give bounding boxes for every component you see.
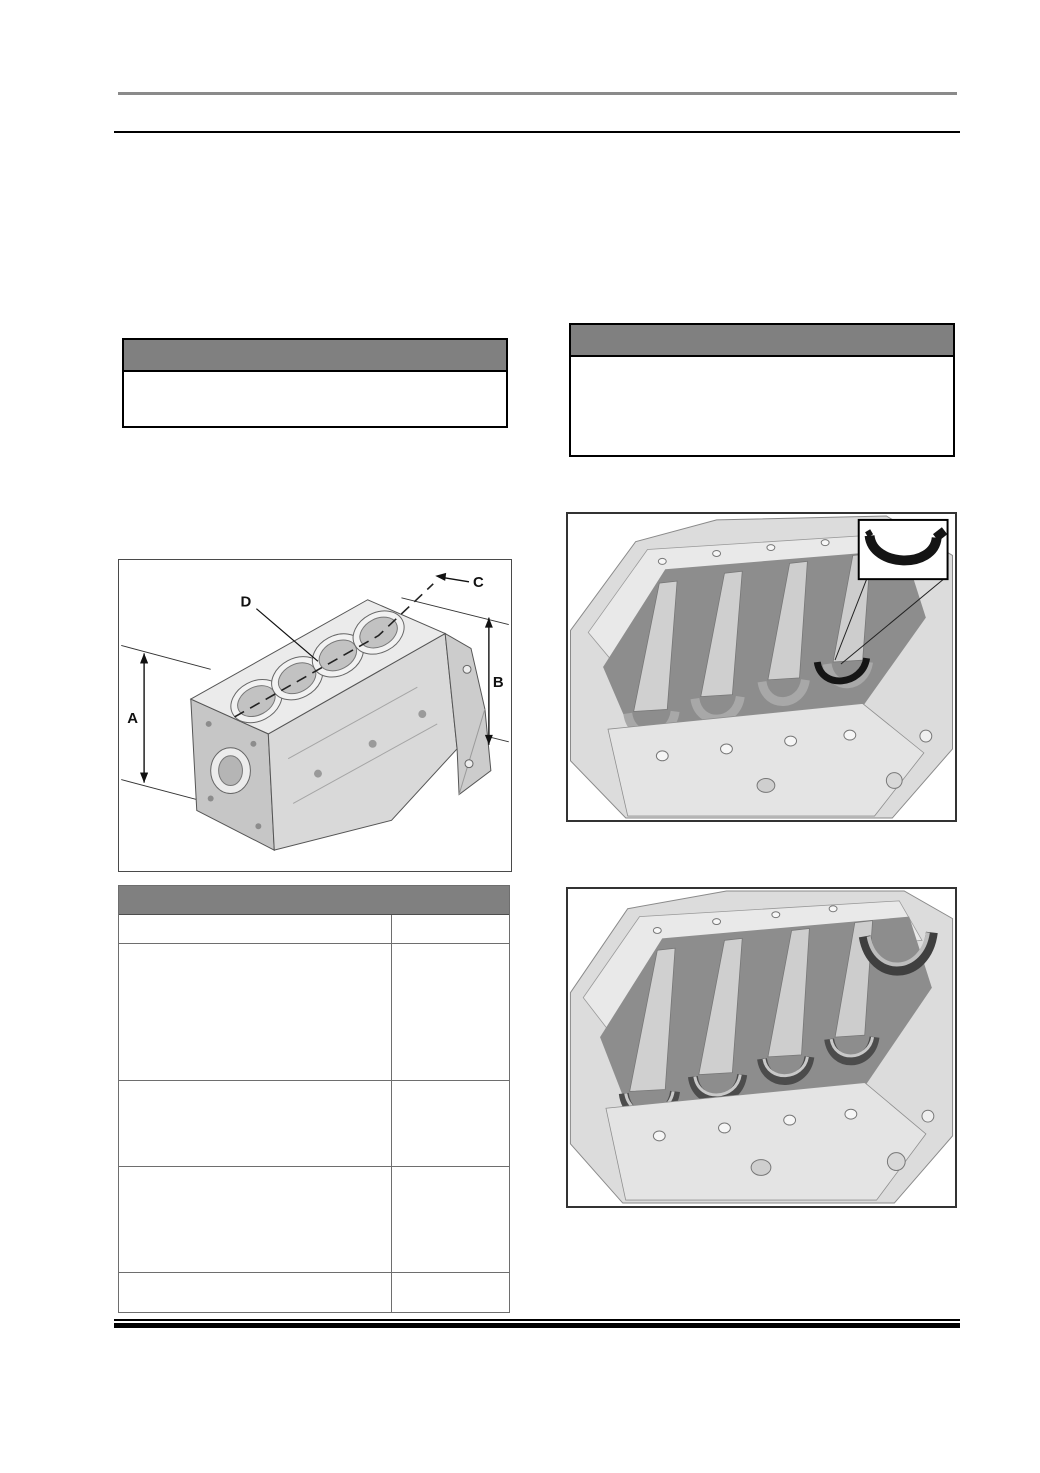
dimension-label-b: B bbox=[493, 675, 504, 691]
dimension-a-arrow-top bbox=[140, 653, 148, 663]
notice-box-right-body bbox=[571, 357, 953, 369]
engine-block-drawing: A B C D bbox=[119, 560, 511, 871]
dimension-a-arrow-bottom bbox=[140, 773, 148, 783]
spec-table bbox=[118, 885, 510, 1313]
notice-box-left-body bbox=[124, 372, 506, 384]
spec-cell-value bbox=[392, 1273, 509, 1313]
header-rule-black bbox=[114, 131, 960, 133]
spec-cell-value bbox=[392, 1167, 509, 1272]
footer-rule-thin bbox=[114, 1319, 960, 1321]
dimension-label-c: C bbox=[473, 575, 484, 591]
spec-cell-description bbox=[119, 1081, 392, 1166]
table-row bbox=[119, 1080, 509, 1166]
spec-col-header-description bbox=[119, 915, 392, 943]
notice-box-right bbox=[569, 323, 955, 457]
engine-block-dimension-diagram: A B C D bbox=[118, 559, 512, 872]
spec-cell-description bbox=[119, 1273, 392, 1313]
notice-box-right-header bbox=[571, 325, 953, 357]
table-row bbox=[119, 1166, 509, 1272]
spec-cell-description bbox=[119, 1167, 392, 1272]
spec-col-header-value bbox=[392, 915, 509, 943]
spec-cell-value bbox=[392, 944, 509, 1080]
photo-crankcase-bearing-shells bbox=[566, 887, 957, 1208]
notice-box-left bbox=[122, 338, 508, 428]
table-row bbox=[119, 1272, 509, 1313]
table-row bbox=[119, 943, 509, 1080]
spec-table-title-bar bbox=[119, 886, 509, 915]
spec-cell-description bbox=[119, 944, 392, 1080]
spec-cell-value bbox=[392, 1081, 509, 1166]
dimension-label-a: A bbox=[127, 711, 138, 727]
photo-crankcase-thrust-washer bbox=[566, 512, 957, 822]
manual-page: A B C D bbox=[0, 0, 1040, 1473]
header-rule-gray bbox=[118, 92, 957, 95]
dimension-label-d: D bbox=[240, 595, 251, 611]
spec-table-column-header-row bbox=[119, 915, 509, 943]
dimension-c-arrowhead bbox=[435, 573, 446, 581]
notice-box-left-header bbox=[124, 340, 506, 372]
footer-rule-thick bbox=[114, 1323, 960, 1328]
crankcase-illustration-top bbox=[568, 514, 955, 820]
inset-thrust-washer-box bbox=[859, 520, 948, 579]
crankcase-illustration-bottom bbox=[568, 889, 955, 1206]
